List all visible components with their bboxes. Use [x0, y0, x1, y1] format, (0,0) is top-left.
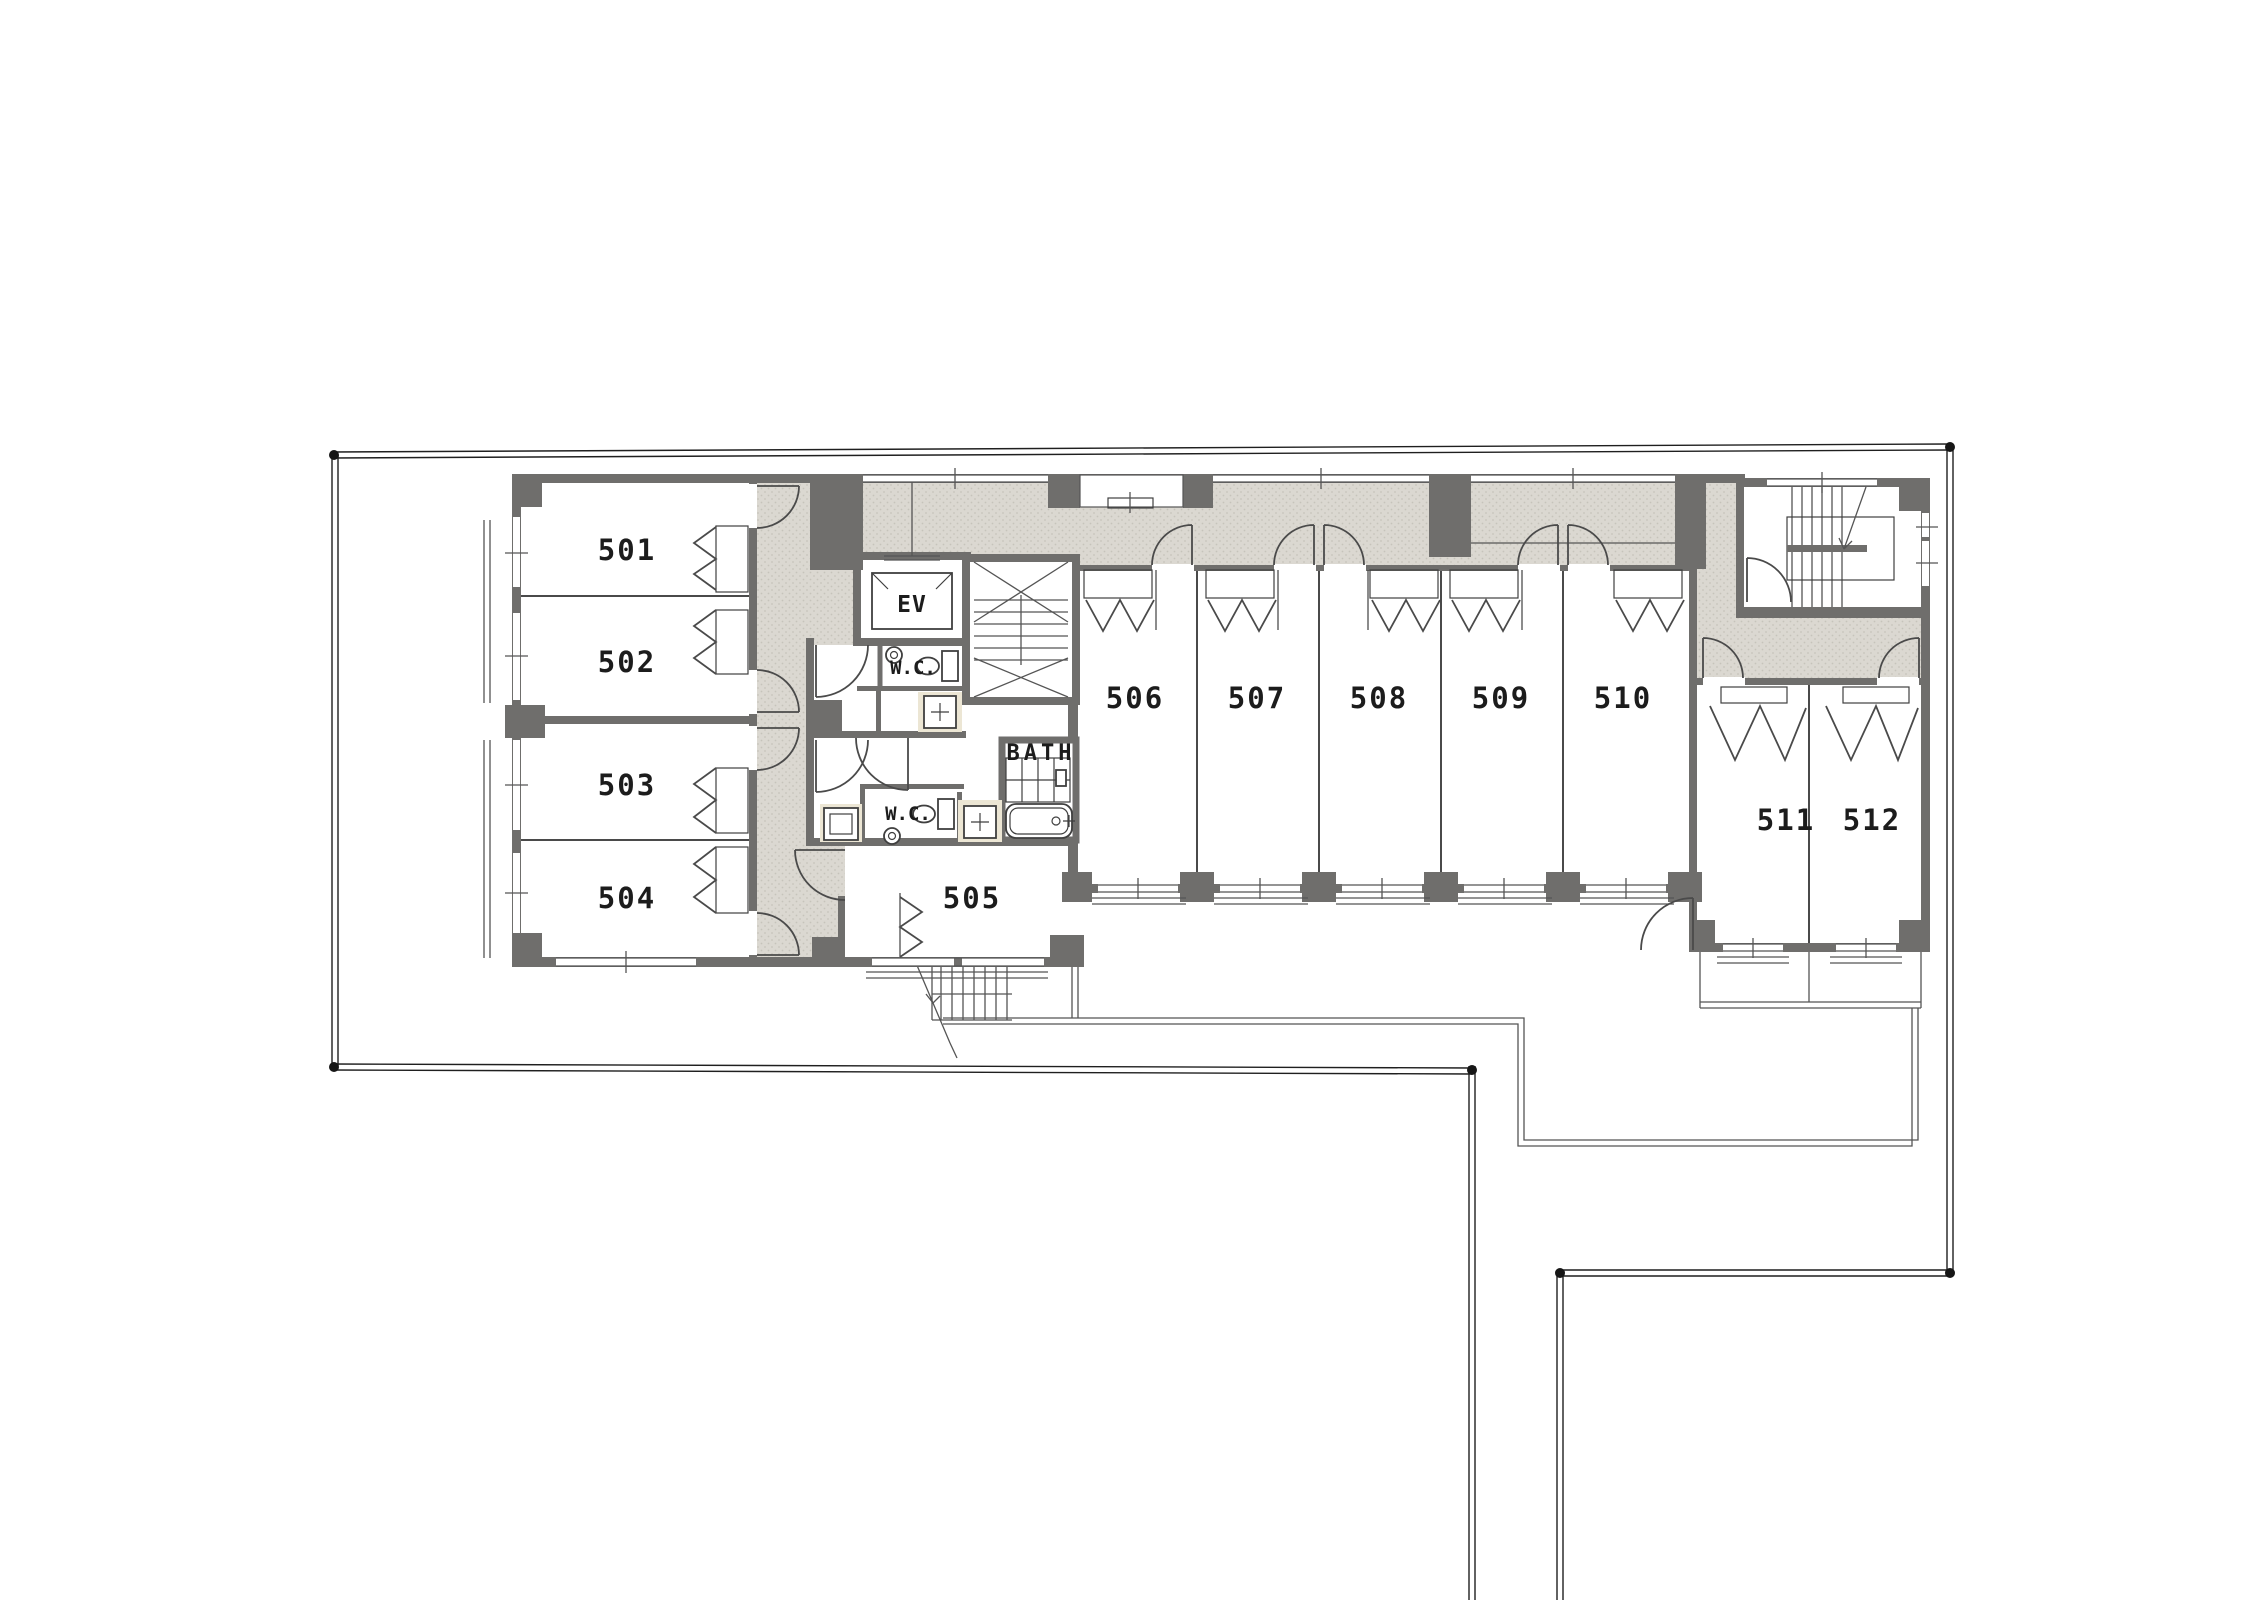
- room-label-504: 504: [598, 881, 656, 915]
- terrace-outline: [943, 967, 1918, 1146]
- room-label-509: 509: [1472, 681, 1530, 715]
- room-label-511: 511: [1757, 803, 1815, 837]
- floor-plan-page: 501 502 503 504 505 506 507 508 509 510 …: [0, 0, 2263, 1600]
- room-label-510: 510: [1594, 681, 1652, 715]
- top-right-stairwell: [1787, 487, 1894, 607]
- exterior-stair: [916, 963, 1012, 1058]
- room-label-503: 503: [598, 768, 656, 802]
- elevator-label: EV: [897, 592, 927, 618]
- top-wall-niche: [1080, 475, 1183, 513]
- room-label-508: 508: [1350, 681, 1408, 715]
- floor-plan-drawing: 501 502 503 504 505 506 507 508 509 510 …: [0, 0, 2263, 1600]
- room-label-502: 502: [598, 645, 656, 679]
- wc-upper-label: W.C.: [890, 657, 936, 679]
- room-label-505: 505: [943, 881, 1001, 915]
- bath-label: BATH: [1007, 741, 1076, 766]
- room-label-512: 512: [1843, 803, 1901, 837]
- room-label-507: 507: [1228, 681, 1286, 715]
- wc-lower-label: W.C.: [885, 803, 931, 825]
- room-label-506: 506: [1106, 681, 1164, 715]
- room-label-501: 501: [598, 533, 656, 567]
